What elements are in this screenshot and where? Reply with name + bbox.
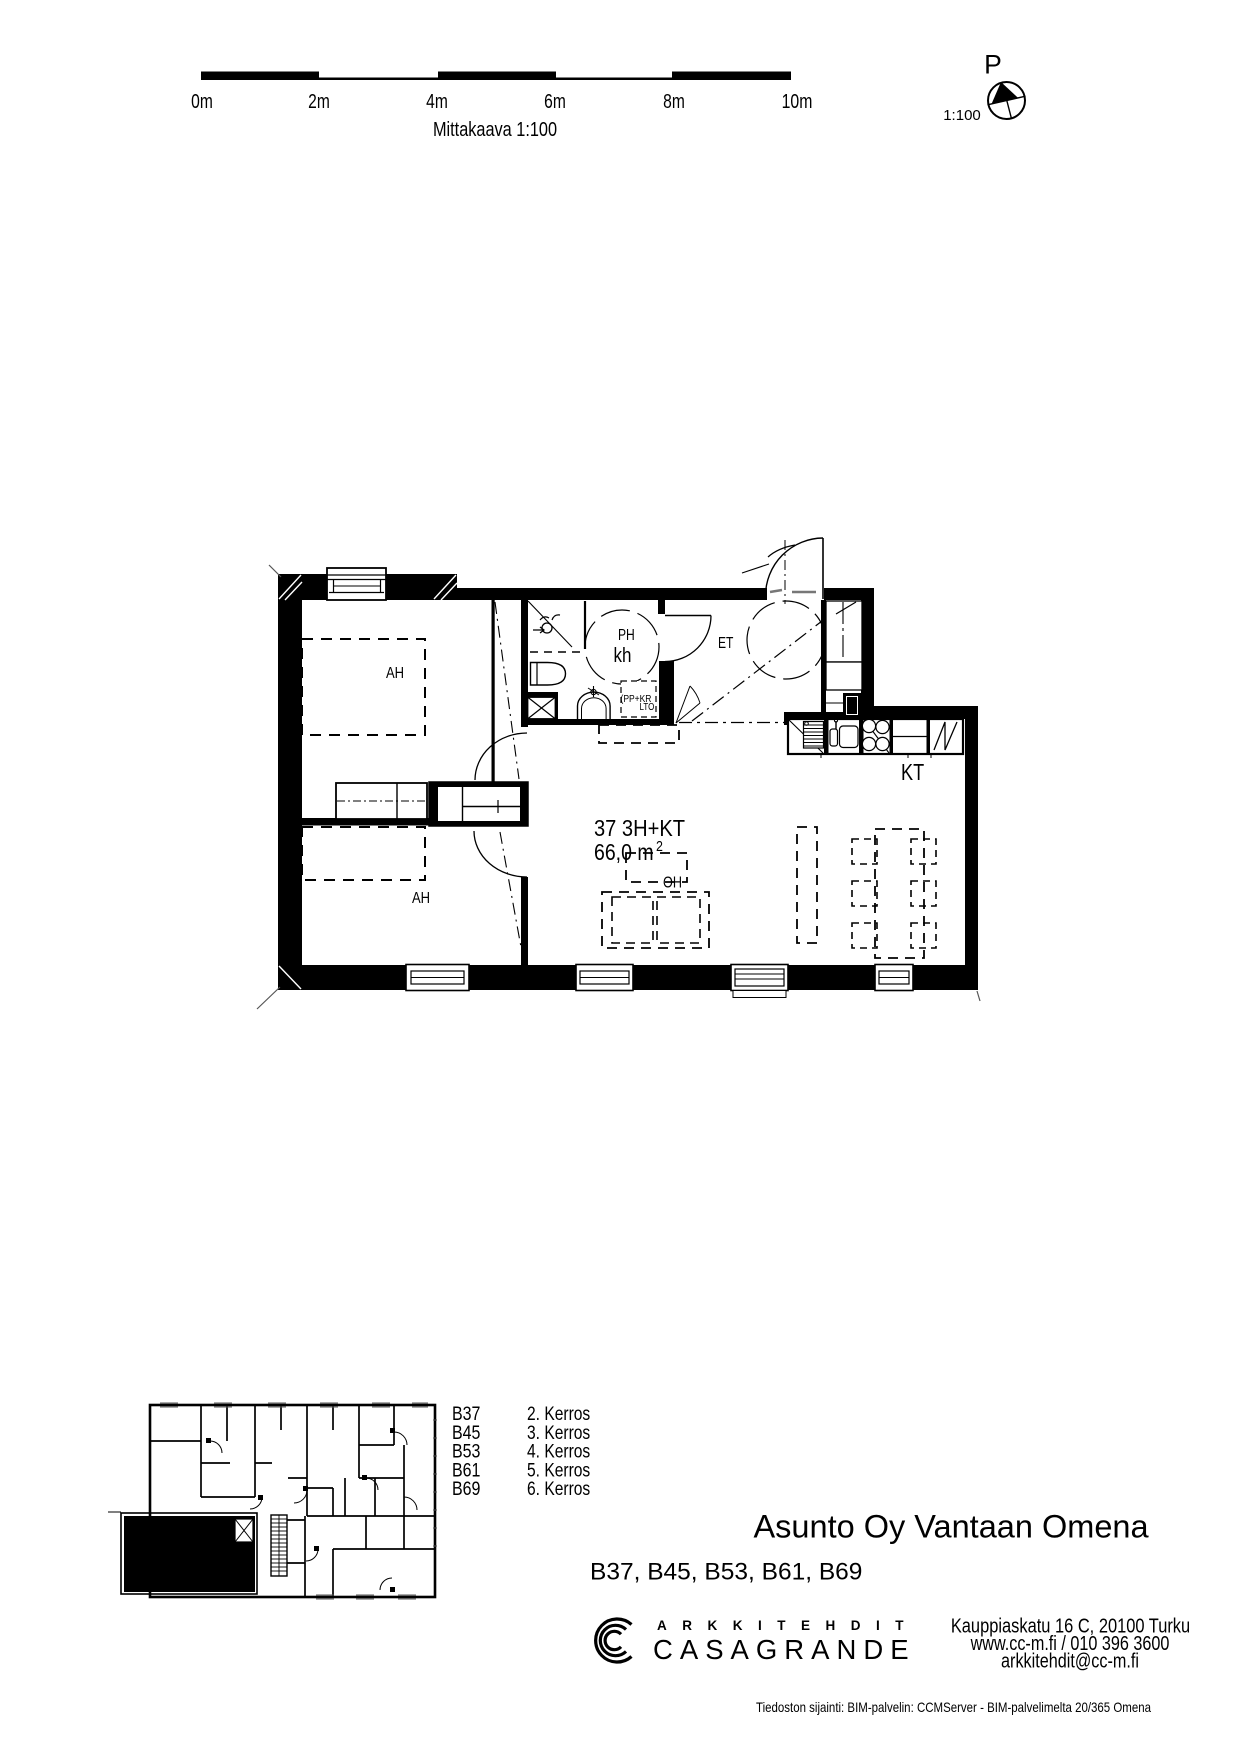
svg-text:66,0 m: 66,0 m: [594, 838, 654, 865]
svg-text:B69: B69: [452, 1478, 481, 1500]
svg-text:LTO: LTO: [640, 701, 655, 712]
svg-text:ARKKITEHDIT: ARKKITEHDIT: [657, 1618, 919, 1633]
svg-text:OH: OH: [663, 873, 682, 891]
svg-text:B37, B45, B53, B61, B69: B37, B45, B53, B61, B69: [590, 1559, 862, 1586]
svg-text:1:100: 1:100: [943, 107, 981, 124]
svg-text:2: 2: [656, 838, 663, 854]
svg-text:6. Kerros: 6. Kerros: [527, 1477, 590, 1499]
svg-text:CASAGRANDE: CASAGRANDE: [653, 1634, 916, 1665]
svg-text:Asunto Oy Vantaan Omena: Asunto Oy Vantaan Omena: [754, 1508, 1150, 1544]
svg-text:4m: 4m: [426, 90, 448, 112]
svg-text:6m: 6m: [544, 90, 566, 112]
svg-text:AH: AH: [412, 890, 430, 907]
svg-text:AH: AH: [386, 665, 404, 682]
svg-text:Mittakaava 1:100: Mittakaava 1:100: [433, 117, 557, 140]
svg-text:KT: KT: [901, 760, 924, 786]
svg-text:2m: 2m: [308, 90, 330, 112]
svg-text:arkkitehdit@cc-m.fi: arkkitehdit@cc-m.fi: [1001, 1650, 1139, 1672]
svg-text:PH: PH: [618, 626, 635, 644]
svg-text:ET: ET: [718, 634, 734, 652]
svg-text:Tiedoston sijainti: BIM-palvel: Tiedoston sijainti: BIM-palvelin: CCMSer…: [756, 1699, 1152, 1715]
svg-text:P: P: [984, 50, 1002, 80]
svg-text:8m: 8m: [663, 90, 685, 112]
svg-text:0m: 0m: [191, 90, 213, 112]
svg-text:kh: kh: [614, 644, 632, 667]
svg-text:10m: 10m: [782, 90, 813, 112]
